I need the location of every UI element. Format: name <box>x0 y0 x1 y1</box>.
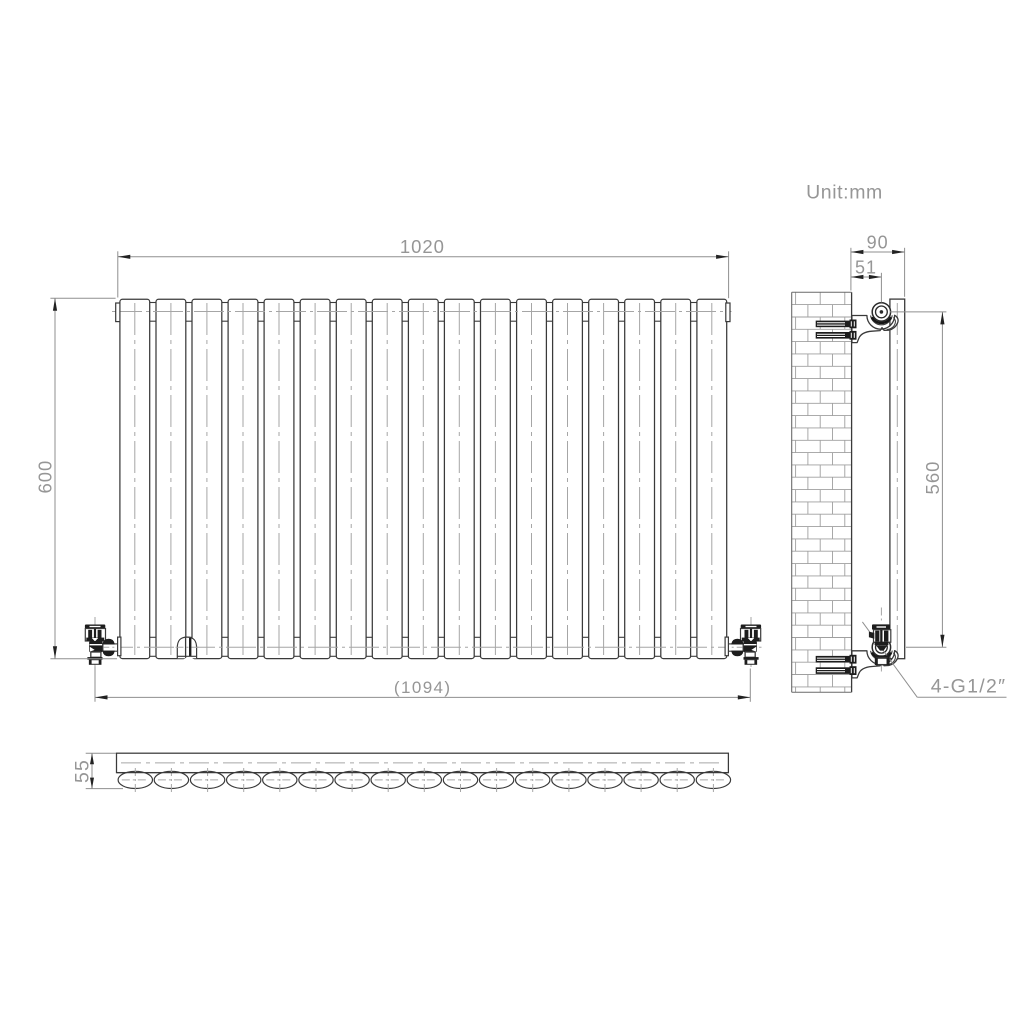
svg-text:1020: 1020 <box>400 236 445 257</box>
svg-text:Unit:mm: Unit:mm <box>806 182 883 204</box>
svg-text:600: 600 <box>35 460 56 494</box>
svg-text:560: 560 <box>922 461 943 495</box>
svg-text:55: 55 <box>72 759 94 783</box>
svg-text:51: 51 <box>855 257 877 277</box>
svg-text:4-G1/2″: 4-G1/2″ <box>931 676 1007 698</box>
svg-text:(1094): (1094) <box>394 678 452 697</box>
svg-text:90: 90 <box>867 232 889 252</box>
